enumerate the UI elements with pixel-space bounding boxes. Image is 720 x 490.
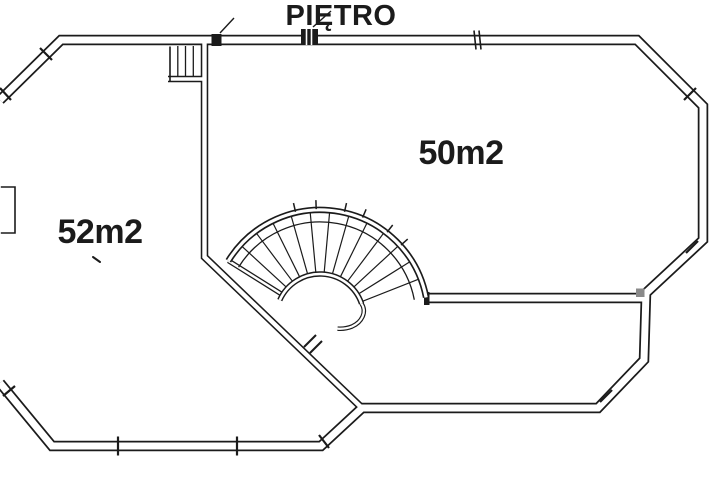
floor-plan: PIĘTRO 52m2 50m2 (0, 0, 720, 490)
room-area-label-right: 50m2 (419, 136, 504, 170)
stair-inner-tail (338, 304, 364, 329)
interior-wall-left (205, 41, 363, 408)
floor-title: PIĘTRO (286, 2, 397, 31)
room-area-label-left: 52m2 (58, 215, 143, 249)
label-accent-mark (93, 257, 100, 262)
junction-block (636, 289, 645, 298)
left-edge-recess (1, 187, 15, 233)
stair-outer-arc (228, 210, 426, 297)
